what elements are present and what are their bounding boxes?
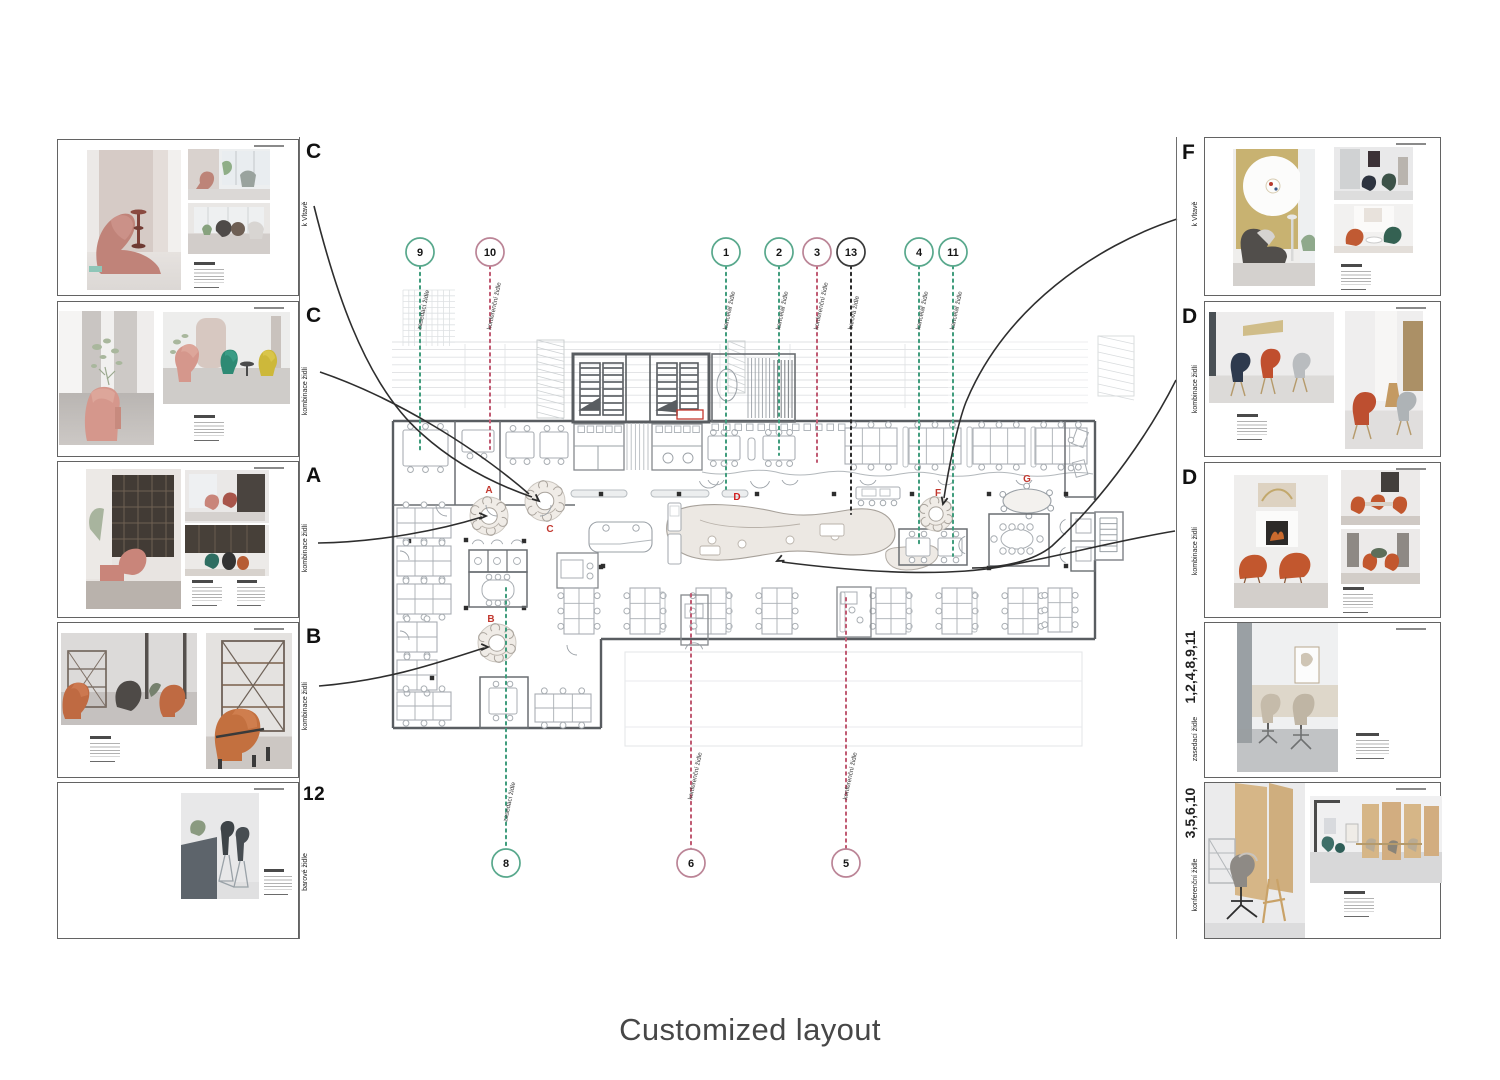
svg-text:zasedací židle: zasedací židle [416,289,431,331]
svg-text:konferenční židle: konferenční židle [842,751,859,800]
svg-text:5: 5 [843,858,849,870]
svg-text:9: 9 [417,247,423,259]
svg-text:6: 6 [688,858,694,870]
svg-text:barová židle: barová židle [847,295,861,331]
svg-text:kancelář židle: kancelář židle [949,290,964,330]
svg-text:B: B [487,614,494,625]
svg-text:konferenční židle: konferenční židle [486,281,503,330]
svg-text:kancelář židle: kancelář židle [915,290,930,330]
svg-text:kancelář židle: kancelář židle [775,290,790,330]
svg-text:8: 8 [503,858,509,870]
svg-text:11: 11 [947,247,959,259]
svg-text:10: 10 [484,247,496,259]
svg-text:G: G [1023,474,1031,485]
svg-text:zasedací židle: zasedací židle [502,781,517,823]
svg-text:kancelář židle: kancelář židle [722,290,737,330]
svg-text:D: D [733,492,740,503]
svg-text:3: 3 [814,247,820,259]
svg-text:1: 1 [723,247,729,259]
svg-text:C: C [546,524,553,535]
svg-text:konferenční židle: konferenční židle [687,751,704,800]
svg-text:4: 4 [916,247,923,259]
svg-text:A: A [485,485,492,496]
svg-text:13: 13 [845,247,857,259]
svg-text:2: 2 [776,247,782,259]
svg-text:konferenční židle: konferenční židle [813,281,830,330]
